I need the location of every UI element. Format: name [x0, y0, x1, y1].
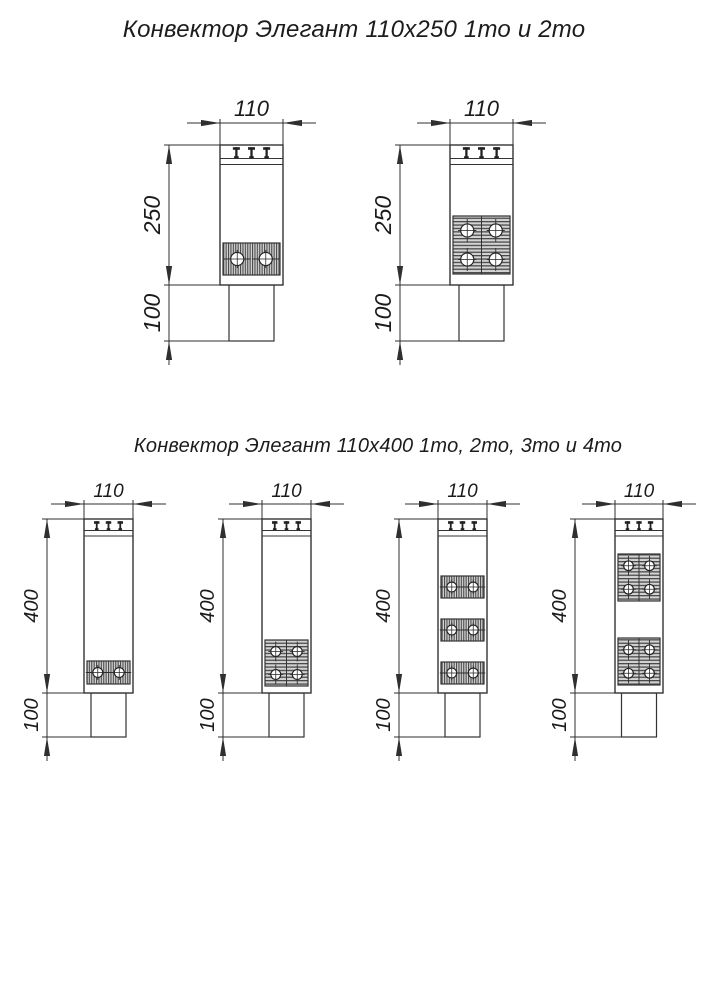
width-dimension-label: 110: [234, 96, 270, 121]
base-dimension-label: 100: [549, 698, 571, 731]
diagram-110x250-1to: 110250100: [139, 96, 316, 365]
diagram-110x250-2to: 110250100: [370, 96, 546, 365]
base-dimension-label: 100: [139, 294, 165, 333]
grille-pin-foot: [107, 528, 111, 530]
arrow-down: [397, 266, 403, 285]
height-dimension-label: 250: [370, 196, 396, 236]
grille-pin-foot: [626, 528, 630, 530]
arrow-right: [513, 120, 532, 126]
grille-pin-foot: [285, 528, 289, 530]
height-dimension-label: 400: [21, 589, 43, 622]
arrow-right: [283, 120, 302, 126]
arrow-down: [220, 674, 226, 693]
base-dimension-label: 100: [373, 698, 395, 731]
grille-pin-foot: [296, 528, 300, 530]
arrow-down: [572, 674, 578, 693]
grille-pin-stem: [235, 147, 237, 157]
arrow-up: [396, 519, 402, 538]
arrow-left: [596, 501, 615, 507]
arrow-up-outside: [166, 341, 172, 360]
arrow-right: [663, 501, 682, 507]
width-dimension-label: 110: [447, 481, 478, 502]
grille-pin-stem: [495, 147, 497, 157]
arrow-up-outside: [44, 737, 50, 756]
arrow-left: [65, 501, 84, 507]
width-dimension-label: 110: [93, 481, 124, 502]
diagram-110x400-4to: 110400100: [549, 481, 696, 761]
grille-pin-foot: [649, 528, 653, 530]
grille-pin-stem: [480, 147, 482, 157]
arrow-up-outside: [572, 737, 578, 756]
arrow-up: [44, 519, 50, 538]
grille-pin-foot: [264, 156, 269, 158]
grille-pin-stem: [250, 147, 252, 157]
technical-drawing: 1102501001102501001104001001104001001104…: [0, 0, 708, 1000]
grille-pin-foot: [95, 528, 99, 530]
arrow-right: [311, 501, 330, 507]
arrow-up: [166, 145, 172, 164]
grille-pin-foot: [118, 528, 122, 530]
grille-pin-foot: [479, 156, 484, 158]
grille-pin-foot: [494, 156, 499, 158]
grille-pin-stem: [265, 147, 267, 157]
grille-pin-stem: [465, 147, 467, 157]
grille-pin-foot: [449, 528, 453, 530]
base-box: [459, 285, 504, 341]
arrow-down: [166, 266, 172, 285]
diagram-110x400-1to: 110400100: [21, 481, 166, 761]
arrow-left: [431, 120, 450, 126]
arrow-up-outside: [396, 737, 402, 756]
diagram-110x400-3to: 110400100: [373, 481, 520, 761]
height-dimension-label: 400: [197, 589, 219, 622]
grille-pin-foot: [637, 528, 641, 530]
width-dimension-label: 110: [271, 481, 302, 502]
base-box: [229, 285, 274, 341]
arrow-right: [487, 501, 506, 507]
height-dimension-label: 400: [373, 589, 395, 622]
arrow-right: [133, 501, 152, 507]
arrow-down: [396, 674, 402, 693]
arrow-left: [419, 501, 438, 507]
base-box: [91, 693, 126, 737]
grille-pin-foot: [472, 528, 476, 530]
base-box: [269, 693, 304, 737]
grille-pin-foot: [249, 156, 254, 158]
height-dimension-label: 400: [549, 589, 571, 622]
diagram-110x400-2to: 110400100: [197, 481, 344, 761]
grille-pin-foot: [464, 156, 469, 158]
arrow-up: [397, 145, 403, 164]
grille-pin-foot: [461, 528, 465, 530]
arrow-left: [243, 501, 262, 507]
arrow-down: [44, 674, 50, 693]
arrow-up-outside: [397, 341, 403, 360]
base-dimension-label: 100: [197, 698, 219, 731]
base-box: [622, 693, 657, 737]
width-dimension-label: 110: [464, 96, 500, 121]
base-dimension-label: 100: [21, 698, 43, 731]
arrow-up: [572, 519, 578, 538]
arrow-up-outside: [220, 737, 226, 756]
height-dimension-label: 250: [139, 196, 165, 236]
base-dimension-label: 100: [370, 294, 396, 333]
grille-pin-foot: [273, 528, 277, 530]
grille-pin-foot: [234, 156, 239, 158]
base-box: [445, 693, 480, 737]
arrow-up: [220, 519, 226, 538]
drawing-page: Конвектор Элегант 110x250 1то и 2то Конв…: [0, 0, 708, 1000]
width-dimension-label: 110: [624, 481, 655, 502]
arrow-left: [201, 120, 220, 126]
